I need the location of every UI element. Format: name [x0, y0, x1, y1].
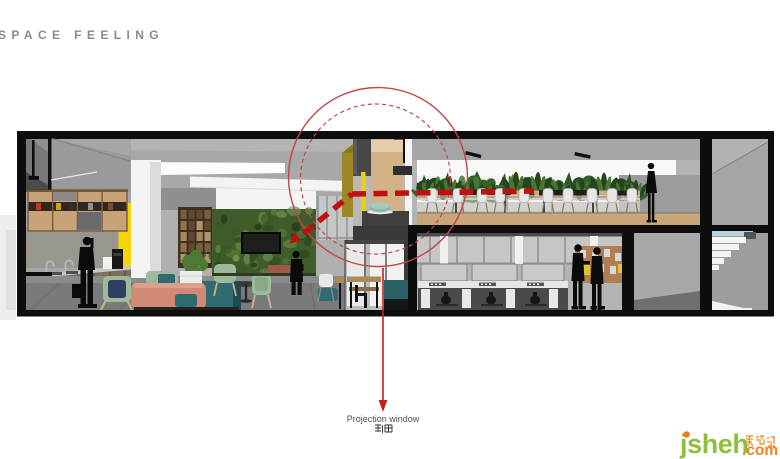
svg-text:Projection window: Projection window [347, 414, 420, 424]
